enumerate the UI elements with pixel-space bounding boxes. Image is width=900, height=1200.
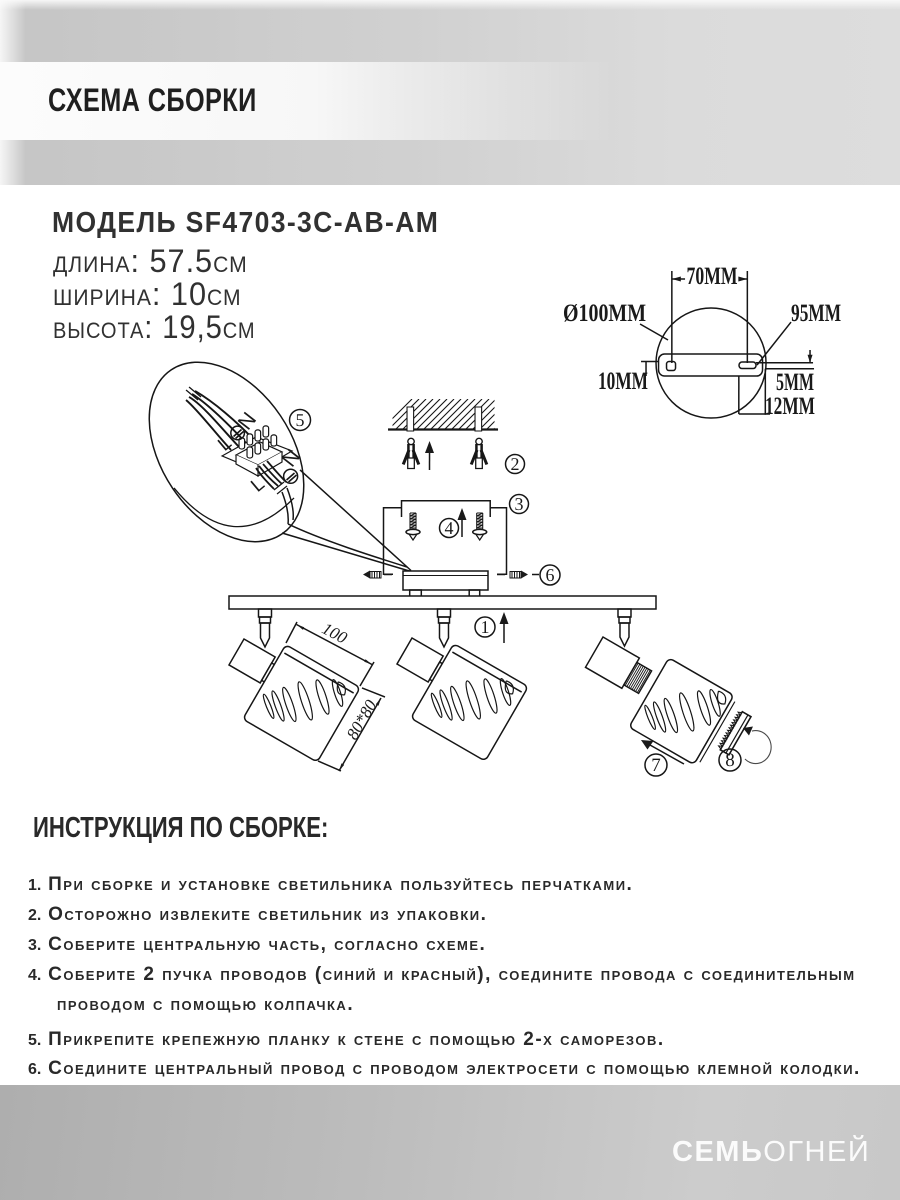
svg-text:4: 4 (445, 518, 454, 538)
svg-text:Ø100MM: Ø100MM (563, 300, 646, 327)
svg-text:10MM: 10MM (598, 368, 648, 395)
svg-text:5MM: 5MM (776, 369, 814, 396)
svg-text:95MM: 95MM (791, 300, 841, 327)
svg-text:12MM: 12MM (765, 393, 815, 420)
svg-text:100: 100 (319, 619, 351, 648)
svg-text:5: 5 (296, 410, 305, 430)
svg-text:7: 7 (651, 755, 661, 776)
svg-text:70MM: 70MM (687, 263, 738, 290)
svg-text:L: L (247, 474, 269, 497)
svg-text:2: 2 (511, 454, 520, 474)
svg-text:1: 1 (480, 617, 489, 637)
svg-text:8: 8 (725, 750, 735, 771)
svg-text:3: 3 (515, 494, 524, 514)
svg-text:6: 6 (546, 565, 555, 585)
